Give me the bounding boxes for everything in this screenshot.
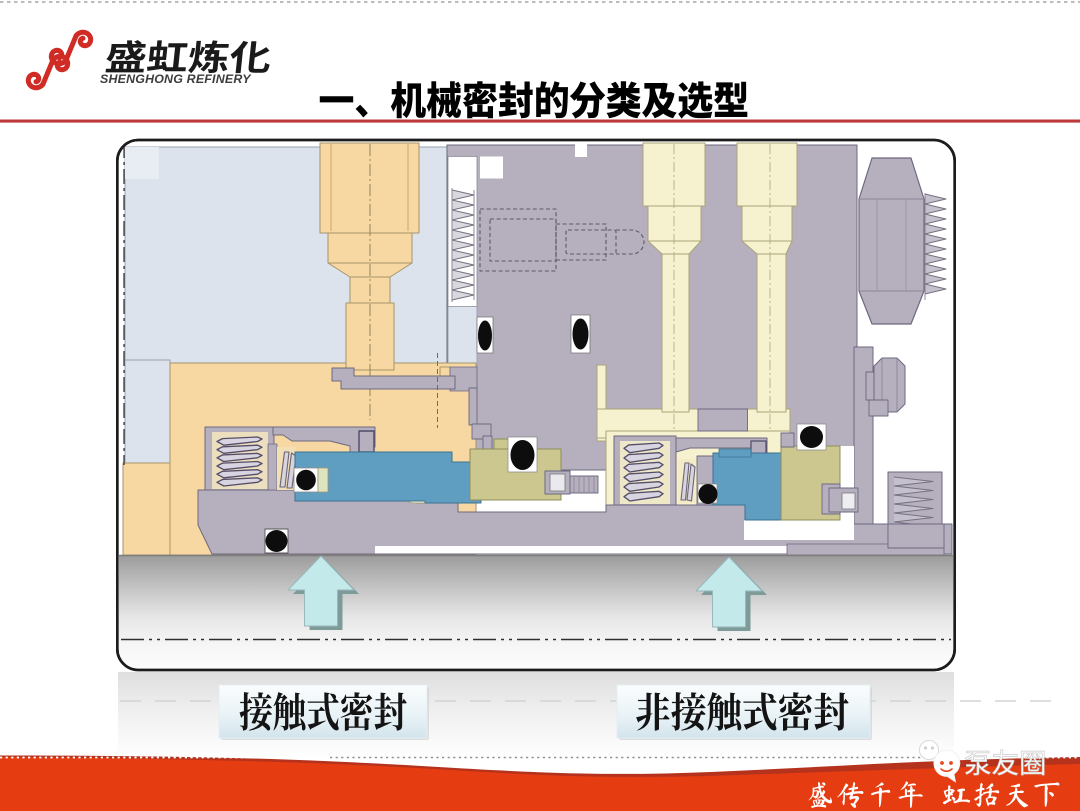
svg-text:SHENGHONG REFINERY: SHENGHONG REFINERY [100, 72, 252, 86]
